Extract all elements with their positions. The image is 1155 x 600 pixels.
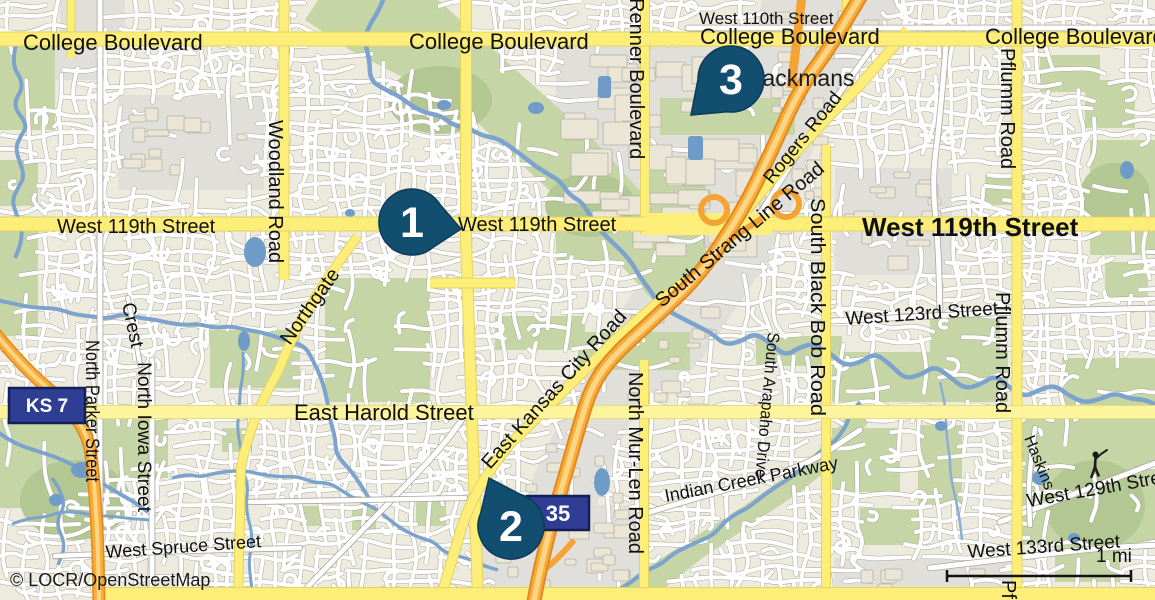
svg-text:KS 7: KS 7: [26, 396, 68, 417]
svg-text:North Iowa Street: North Iowa Street: [133, 362, 154, 513]
svg-text:College Boulevard: College Boulevard: [23, 30, 203, 55]
svg-text:2: 2: [499, 503, 523, 551]
svg-text:1 mi: 1 mi: [1096, 546, 1132, 567]
svg-text:North Mur-Len Road: North Mur-Len Road: [624, 372, 646, 554]
svg-text:East Harold Street: East Harold Street: [294, 400, 474, 425]
svg-text:Renner Boulevard: Renner Boulevard: [625, 0, 647, 159]
svg-text:South Black Bob Road: South Black Bob Road: [806, 198, 828, 416]
svg-text:College Boulevard: College Boulevard: [985, 24, 1155, 49]
svg-text:West 110th Street: West 110th Street: [699, 9, 834, 28]
svg-text:Pflumm Road: Pflumm Road: [996, 48, 1018, 169]
svg-text:West 119th Street: West 119th Street: [862, 212, 1079, 242]
svg-text:College Boulevard: College Boulevard: [409, 29, 589, 54]
svg-text:1: 1: [400, 199, 424, 247]
svg-text:35: 35: [546, 501, 570, 526]
svg-text:West 119th Street: West 119th Street: [57, 216, 216, 238]
svg-text:West 119th Street: West 119th Street: [458, 214, 617, 236]
svg-text:© LOCR/OpenStreetMap: © LOCR/OpenStreetMap: [10, 570, 210, 590]
svg-text:Pflu: Pflu: [997, 580, 1019, 600]
svg-text:3: 3: [719, 56, 743, 104]
svg-text:Woodland Road: Woodland Road: [264, 120, 286, 263]
